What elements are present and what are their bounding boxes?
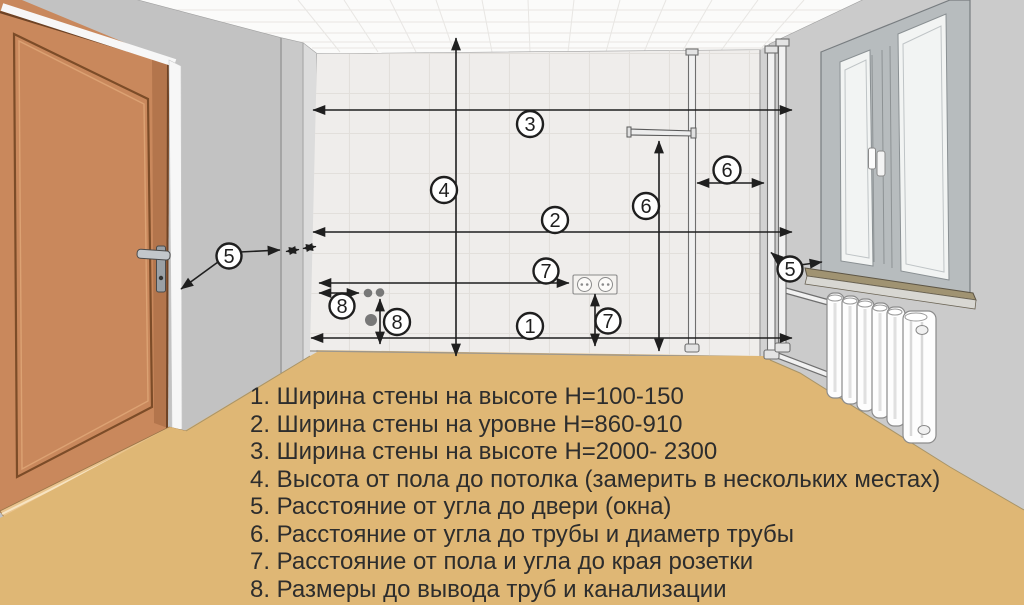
legend-item-1: 1. Ширина стены на высоте Н=100-150 bbox=[250, 383, 684, 410]
room-measurement-diagram: 1 2 3 4 5 5 6 6 7 7 8 8 1. Ширина стены … bbox=[0, 0, 1024, 605]
legend-item-3: 3. Ширина стены на высоте Н=2000- 2300 bbox=[250, 438, 717, 465]
svg-text:5: 5 bbox=[784, 259, 795, 281]
pipe-mid-wall bbox=[689, 54, 696, 348]
svg-text:3: 3 bbox=[524, 114, 535, 136]
legend-item-5: 5. Расстояние от угла до двери (окна) bbox=[250, 493, 671, 520]
marker-6-horizontal: 6 bbox=[714, 157, 741, 184]
svg-text:1: 1 bbox=[524, 316, 535, 338]
svg-text:6: 6 bbox=[640, 196, 651, 218]
legend-item-7: 7. Расстояние от пола и угла до края роз… bbox=[250, 548, 753, 575]
main-wall bbox=[310, 44, 770, 360]
marker-7-vertical: 7 bbox=[596, 309, 621, 334]
svg-text:7: 7 bbox=[540, 261, 551, 283]
radiator-boss-bottom bbox=[918, 426, 930, 435]
marker-4: 4 bbox=[431, 177, 457, 203]
svg-text:7: 7 bbox=[602, 311, 613, 333]
left-corner-face-1 bbox=[281, 38, 303, 373]
room-diagram-canvas: 1 2 3 4 5 5 6 6 7 7 8 8 1. Ширина стены … bbox=[0, 0, 1024, 605]
marker-7-horizontal: 7 bbox=[534, 259, 559, 284]
svg-text:5: 5 bbox=[223, 246, 234, 268]
power-socket bbox=[573, 275, 617, 294]
svg-text:8: 8 bbox=[336, 296, 347, 318]
legend-item-4: 4. Высота от пола до потолка (замерить в… bbox=[250, 466, 940, 493]
svg-text:8: 8 bbox=[391, 312, 402, 334]
radiator-boss-top bbox=[916, 326, 928, 335]
marker-5-right: 5 bbox=[778, 257, 803, 282]
marker-3: 3 bbox=[517, 111, 543, 137]
keyhole-icon bbox=[159, 276, 163, 280]
marker-5-left: 5 bbox=[217, 244, 242, 269]
marker-6-vertical: 6 bbox=[633, 193, 659, 219]
legend-item-2: 2. Ширина стены на уровне Н=860-910 bbox=[250, 411, 683, 438]
pipe-corner-1 bbox=[768, 52, 776, 356]
legend-item-8: 8. Размеры до вывода труб и канализации bbox=[250, 576, 727, 603]
marker-8-horizontal: 8 bbox=[330, 294, 355, 319]
svg-text:6: 6 bbox=[721, 160, 732, 182]
svg-text:4: 4 bbox=[438, 180, 449, 202]
marker-8-vertical: 8 bbox=[384, 309, 410, 335]
marker-2: 2 bbox=[542, 207, 568, 233]
svg-text:2: 2 bbox=[549, 210, 560, 232]
legend-item-6: 6. Расстояние от угла до трубы и диаметр… bbox=[250, 521, 794, 548]
marker-1: 1 bbox=[517, 313, 543, 339]
main-wall-grid bbox=[310, 50, 766, 356]
pipe-corner-2 bbox=[779, 45, 787, 350]
